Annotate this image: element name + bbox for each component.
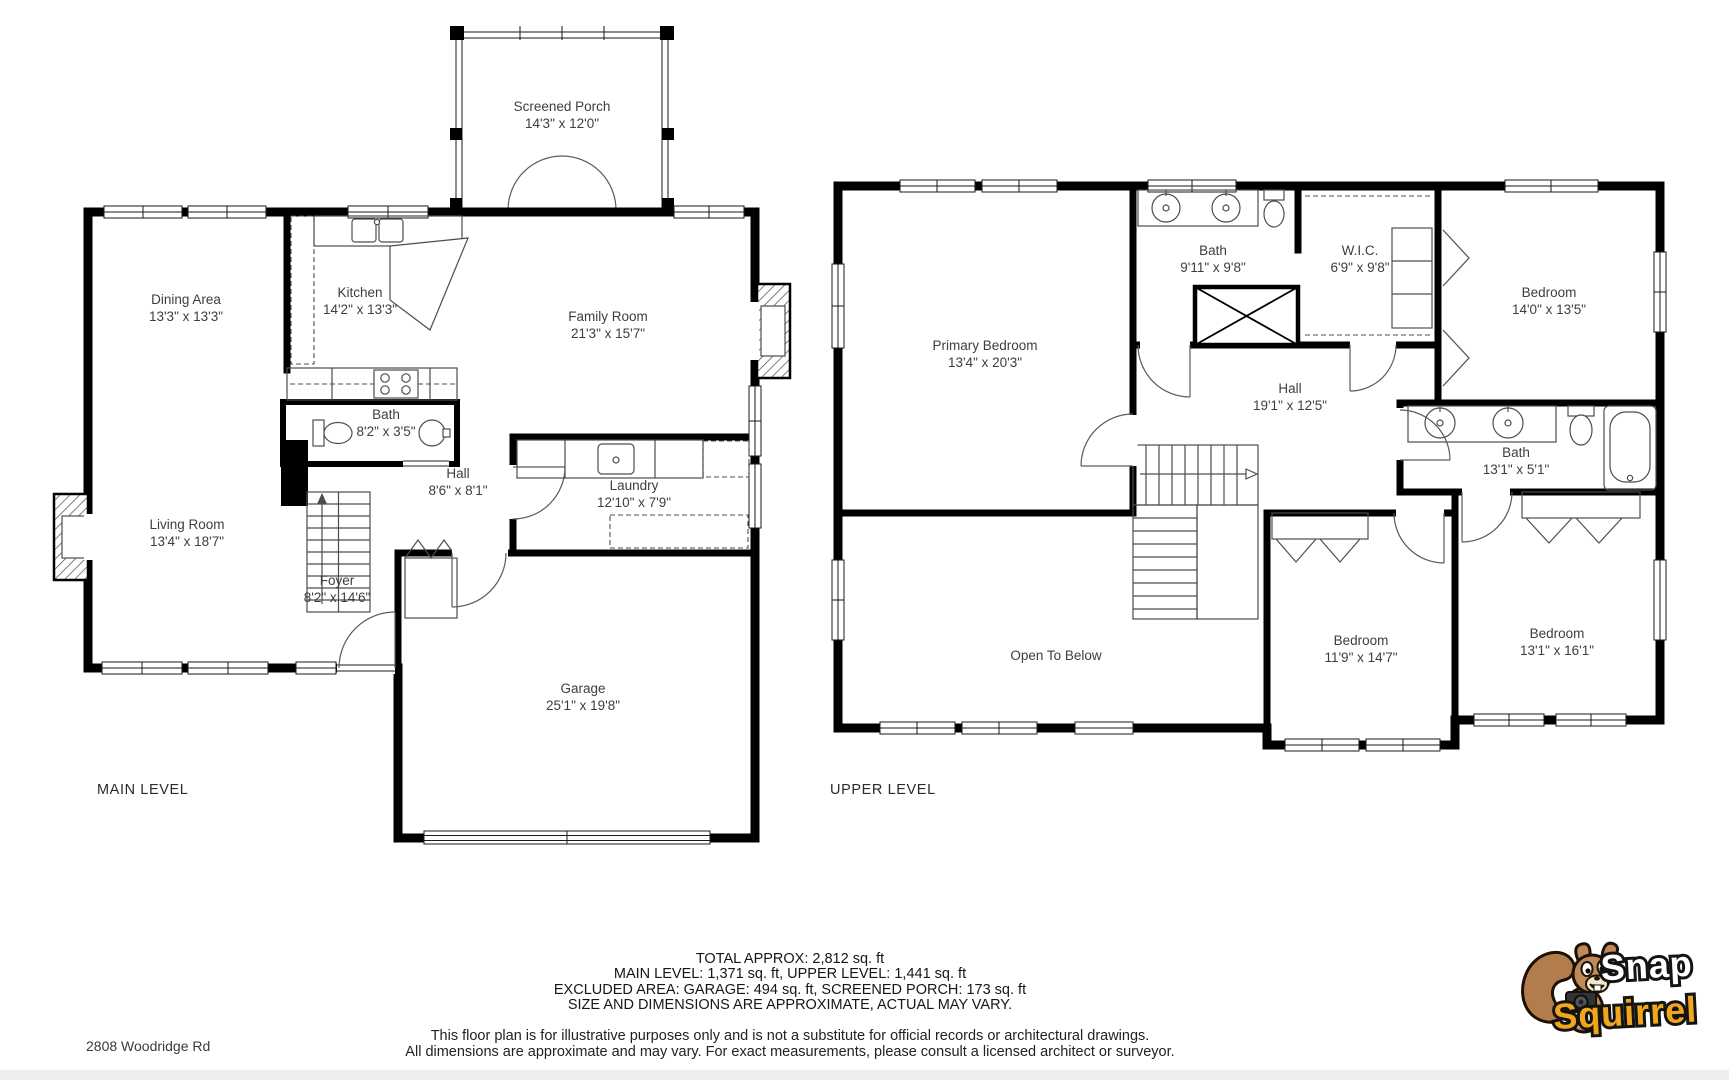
room-label-garage: Garage xyxy=(560,681,605,696)
room-label-upper-hall: Hall xyxy=(1278,381,1301,396)
room-dims-wic: 6'9" x 9'8" xyxy=(1330,260,1389,275)
upper-level-label: UPPER LEVEL xyxy=(830,782,936,798)
disclaimer-line-2: All dimensions are approximate and may v… xyxy=(240,1044,1340,1060)
room-label-primary-bath: Bath xyxy=(1199,243,1227,258)
snapsquirrel-logo: Snap Squirrel xyxy=(1500,922,1715,1054)
logo-graphic: Snap Squirrel xyxy=(1500,922,1715,1054)
main-room-labels: Screened Porch 14'3" x 12'0" Dining Area… xyxy=(149,99,671,713)
room-dims-primary-bedroom: 13'4" x 20'3" xyxy=(948,355,1022,370)
room-dims-bedroom-br: 13'1" x 16'1" xyxy=(1520,643,1594,658)
room-dims-garage: 25'1" x 19'8" xyxy=(546,698,620,713)
room-dims-family-room: 21'3" x 15'7" xyxy=(571,326,645,341)
summary-excluded: EXCLUDED AREA: GARAGE: 494 sq. ft, SCREE… xyxy=(340,983,1240,998)
room-dims-upper-hall: 19'1" x 12'5" xyxy=(1253,398,1327,413)
upper-level-plan: Primary Bedroom 13'4" x 20'3" Bath 9'11"… xyxy=(830,180,1666,798)
primary-bath-fixtures xyxy=(1138,190,1284,227)
room-label-open-to-below: Open To Below xyxy=(1010,648,1102,663)
room-dims-living-room: 13'4" x 18'7" xyxy=(150,534,224,549)
logo-text-snap: Snap xyxy=(1600,943,1694,989)
room-label-dining-area: Dining Area xyxy=(151,292,221,307)
room-dims-screened-porch: 14'3" x 12'0" xyxy=(525,116,599,131)
summary-levels: MAIN LEVEL: 1,371 sq. ft, UPPER LEVEL: 1… xyxy=(340,967,1240,982)
room-label-main-hall: Hall xyxy=(446,466,469,481)
room-dims-foyer: 8'2" x 14'6" xyxy=(304,590,371,605)
room-label-foyer: Foyer xyxy=(320,573,355,588)
room-label-primary-bedroom: Primary Bedroom xyxy=(932,338,1037,353)
room-dims-bedroom-mid: 11'9" x 14'7" xyxy=(1324,650,1397,665)
summary-note: SIZE AND DIMENSIONS ARE APPROXIMATE, ACT… xyxy=(340,998,1240,1013)
disclaimer: This floor plan is for illustrative purp… xyxy=(240,1028,1340,1060)
room-dims-kitchen: 14'2" x 13'3" xyxy=(323,302,397,317)
room-label-hall-bath: Bath xyxy=(1502,445,1530,460)
room-label-main-bath: Bath xyxy=(372,407,400,422)
room-dims-main-bath: 8'2" x 3'5" xyxy=(356,424,415,439)
room-label-kitchen: Kitchen xyxy=(337,285,382,300)
bottom-strip xyxy=(0,1070,1729,1080)
room-label-laundry: Laundry xyxy=(610,478,659,493)
room-label-living-room: Living Room xyxy=(149,517,224,532)
room-label-screened-porch: Screened Porch xyxy=(514,99,611,114)
room-label-bedroom-br: Bedroom xyxy=(1530,626,1585,641)
main-level-plan: Screened Porch 14'3" x 12'0" Dining Area… xyxy=(54,26,790,844)
room-dims-dining-area: 13'3" x 13'3" xyxy=(149,309,223,324)
room-label-wic: W.I.C. xyxy=(1342,243,1379,258)
hall-bath-fixtures xyxy=(1408,406,1656,490)
room-dims-main-hall: 8'6" x 8'1" xyxy=(428,483,487,498)
living-room-fireplace xyxy=(54,494,93,580)
logo-text-squirrel: Squirrel xyxy=(1552,988,1698,1036)
main-level-label: MAIN LEVEL xyxy=(97,782,188,798)
summary-total: TOTAL APPROX: 2,812 sq. ft xyxy=(340,952,1240,967)
room-dims-laundry: 12'10" x 7'9" xyxy=(597,495,671,510)
room-label-bedroom-mid: Bedroom xyxy=(1334,633,1389,648)
room-dims-hall-bath: 13'1" x 5'1" xyxy=(1483,462,1550,477)
laundry-fixtures xyxy=(517,440,749,548)
room-label-bedroom-tr: Bedroom xyxy=(1522,285,1577,300)
room-dims-bedroom-tr: 14'0" x 13'5" xyxy=(1512,302,1586,317)
property-address: 2808 Woodridge Rd xyxy=(86,1038,210,1054)
kitchen-island xyxy=(390,238,468,330)
linen-closet xyxy=(1195,287,1298,345)
disclaimer-line-1: This floor plan is for illustrative purp… xyxy=(240,1028,1340,1044)
area-summary: TOTAL APPROX: 2,812 sq. ft MAIN LEVEL: 1… xyxy=(340,952,1240,1014)
upper-stairs xyxy=(1133,445,1258,619)
room-label-family-room: Family Room xyxy=(568,309,648,324)
floor-plan-drawing: Screened Porch 14'3" x 12'0" Dining Area… xyxy=(0,0,1729,1080)
floor-plan-page: { "address": "2808 Woodridge Rd", "level… xyxy=(0,0,1729,1080)
room-dims-primary-bath: 9'11" x 9'8" xyxy=(1180,260,1246,275)
